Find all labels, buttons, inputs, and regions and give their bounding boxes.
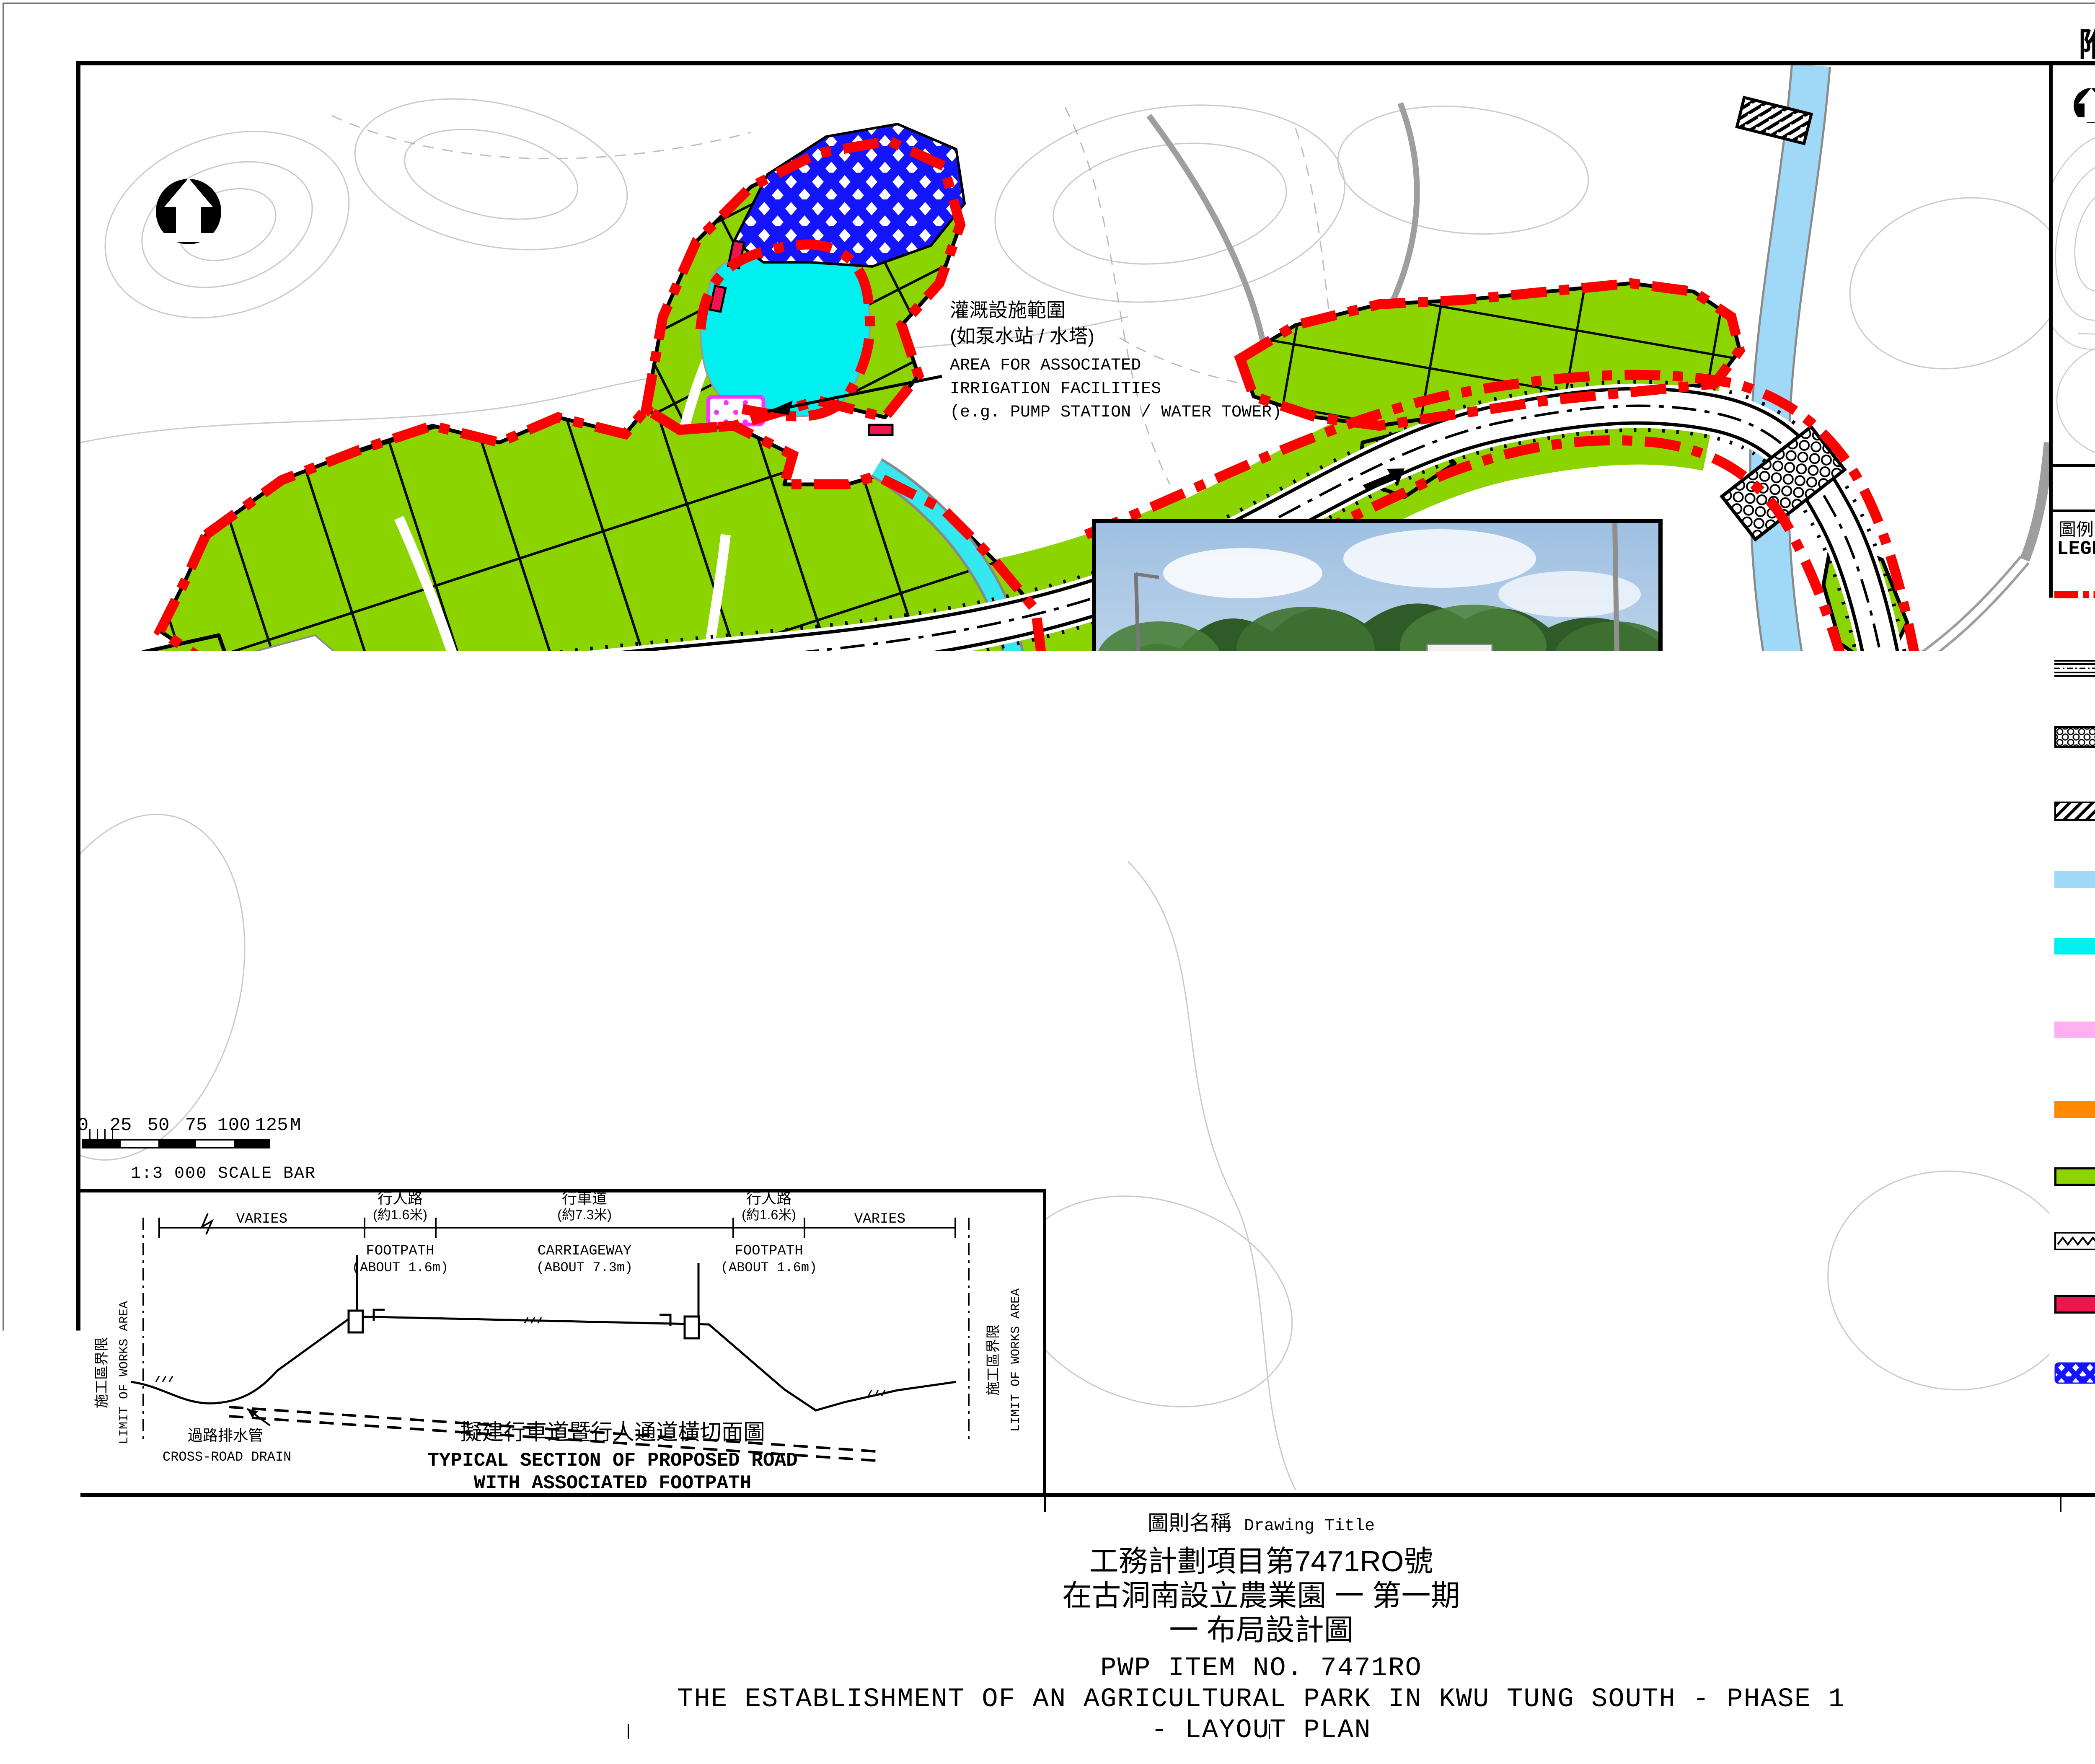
title-zh-3: 一 布局設計圖 [80, 1613, 2095, 1647]
typical-section-drawing: VARIES VARIES 行人路 (約1.6米) FOOTPATH (ABOU… [80, 1192, 1043, 1493]
svg-text:行人路: 行人路 [378, 1192, 423, 1207]
drawing-sheet: 附件1 ENCLOSURE 1 [0, 0, 2095, 1764]
svg-text:LIMIT OF WORKS AREA: LIMIT OF WORKS AREA [1009, 1288, 1023, 1432]
legend-heading-en: LEGEND: [2057, 538, 2095, 560]
svg-text:CARRIAGEWAY: CARRIAGEWAY [538, 1243, 631, 1259]
svg-text:VARIES: VARIES [854, 1211, 905, 1227]
svg-text:TYPICAL SECTION OF PROPOSED RO: TYPICAL SECTION OF PROPOSED ROAD [427, 1450, 797, 1472]
svg-text:AREA FOR ASSOCIATED: AREA FOR ASSOCIATED [950, 356, 1141, 375]
boundary-swatch [2054, 591, 2095, 598]
svg-text:(約7.3米): (約7.3米) [557, 1207, 612, 1222]
aerial-photo [1050, 965, 2043, 1411]
aerial-photomontage: 農業園第一期模擬圖 AGRICULTURAL PARK PHASE 1 PHOT… [1046, 961, 2048, 1490]
lodging-swatch [2054, 1232, 2095, 1252]
svg-text:WITH ASSOCIATED FOOTPATH: WITH ASSOCIATED FOOTPATH [474, 1472, 752, 1493]
farmland-swatch [2054, 1167, 2095, 1186]
river-swatch [2054, 871, 2095, 888]
storage-swatch [2054, 1295, 2095, 1314]
svg-text:(約1.6米): (約1.6米) [742, 1207, 796, 1222]
lodging-symbol [562, 657, 616, 675]
key-plan-caption: 索引圖 KEY PLAN [2053, 464, 2095, 510]
key-plan: 長瀝 Cheung Lek 蓮塘尾 Lin Tong Mei 蕉徑 Tsiu K… [2053, 65, 2095, 510]
svg-text:(約1.6米): (約1.6米) [373, 1207, 427, 1222]
fold-mark [1269, 1724, 1270, 1739]
svg-text:過路排水管: 過路排水管 [188, 1427, 263, 1444]
key-plan-title-zh: 索引圖 [2053, 469, 2095, 497]
svg-text:擬建行車道暨行人通道橫切面圖: 擬建行車道暨行人通道橫切面圖 [460, 1420, 765, 1445]
drawing-frame: 灌溉設施範圍 (如泵水站 / 水塔) AREA FOR ASSOCIATED I… [76, 61, 2095, 1724]
svg-text:行人路: 行人路 [746, 1192, 791, 1207]
svg-text:LIMIT OF WORKS AREA: LIMIT OF WORKS AREA [117, 1301, 132, 1444]
svg-text:VARIES: VARIES [236, 1211, 287, 1227]
north-arrow-icon [156, 178, 221, 244]
bridge-photomontage: 擬建行車橋連行人路的模擬圖 PHOTOMONTAGE OF PROPOSED V… [1092, 519, 1663, 952]
tree-zone-swatch [2054, 1362, 2095, 1386]
bridge-photo [1096, 523, 1658, 877]
svg-text:(ABOUT 1.6m): (ABOUT 1.6m) [721, 1260, 817, 1275]
svg-text:灌溉設施範圍: 灌溉設施範圍 [950, 299, 1066, 321]
svg-text:行車道: 行車道 [562, 1192, 607, 1207]
enclosure-label: 附件1 ENCLOSURE 1 [2079, 18, 2095, 66]
key-plan-north-arrow-icon [2074, 88, 2095, 123]
svg-text:(ABOUT 7.3m): (ABOUT 7.3m) [536, 1260, 633, 1275]
svg-text:施工區界限: 施工區界限 [94, 1337, 110, 1408]
title-block: 圖則名稱Drawing Title 工務計劃項目第7471RO號 在古洞南設立農… [80, 1493, 2095, 1724]
typical-section-panel: VARIES VARIES 行人路 (約1.6米) FOOTPATH (ABOU… [80, 1189, 1046, 1493]
title-zh-1: 工務計劃項目第7471RO號 [80, 1544, 2095, 1578]
fold-mark [628, 1724, 629, 1739]
culvert-swatch [2054, 802, 2095, 821]
track-swatch [2054, 1022, 2095, 1038]
svg-text:CROSS-ROAD DRAIN: CROSS-ROAD DRAIN [163, 1449, 291, 1465]
title-en-1: PWP ITEM NO. 7471RO [80, 1653, 2095, 1684]
aerial-photomontage-caption: 農業園第一期模擬圖 AGRICULTURAL PARK PHASE 1 PHOT… [1050, 1408, 2043, 1485]
svg-text:(ABOUT 1.6m): (ABOUT 1.6m) [352, 1260, 448, 1275]
legend-heading-zh: 圖例: [2059, 515, 2095, 541]
pond-swatch [2054, 938, 2095, 954]
road-swatch [2054, 659, 2095, 680]
bridge-photomontage-caption: 擬建行車橋連行人路的模擬圖 PHOTOMONTAGE OF PROPOSED V… [1096, 874, 1658, 948]
panel-divider [2049, 65, 2053, 1493]
svg-text:施工區界限: 施工區界限 [985, 1324, 1001, 1396]
title-zh-2: 在古洞南設立農業園 一 第一期 [80, 1578, 2095, 1613]
svg-text:IRRIGATION FACILITIES: IRRIGATION FACILITIES [950, 380, 1161, 398]
title-en-2: THE ESTABLISHMENT OF AN AGRICULTURAL PAR… [80, 1684, 2095, 1715]
svg-text:FOOTPATH: FOOTPATH [366, 1243, 434, 1259]
drawing-title-label: 圖則名稱Drawing Title [80, 1506, 2095, 1536]
svg-text:(如泵水站 / 水塔): (如泵水站 / 水塔) [950, 325, 1094, 347]
bridge-swatch [2054, 726, 2095, 750]
key-plan-map: 長瀝 Cheung Lek 蓮塘尾 Lin Tong Mei 蕉徑 Tsiu K… [2053, 65, 2095, 467]
irrigation-pond [701, 245, 870, 416]
legend-panel: 圖例: LEGEND: 農業園第一期擬議範圍BOUNDARY OF PROPOS… [2053, 510, 2095, 1495]
svg-text:(e.g. PUMP STATION / WATER TOW: (e.g. PUMP STATION / WATER TOWER) [950, 403, 1282, 422]
footpath-swatch [2054, 1101, 2095, 1118]
svg-text:FOOTPATH: FOOTPATH [735, 1243, 803, 1259]
title-en-3: - LAYOUT PLAN [80, 1715, 2095, 1746]
